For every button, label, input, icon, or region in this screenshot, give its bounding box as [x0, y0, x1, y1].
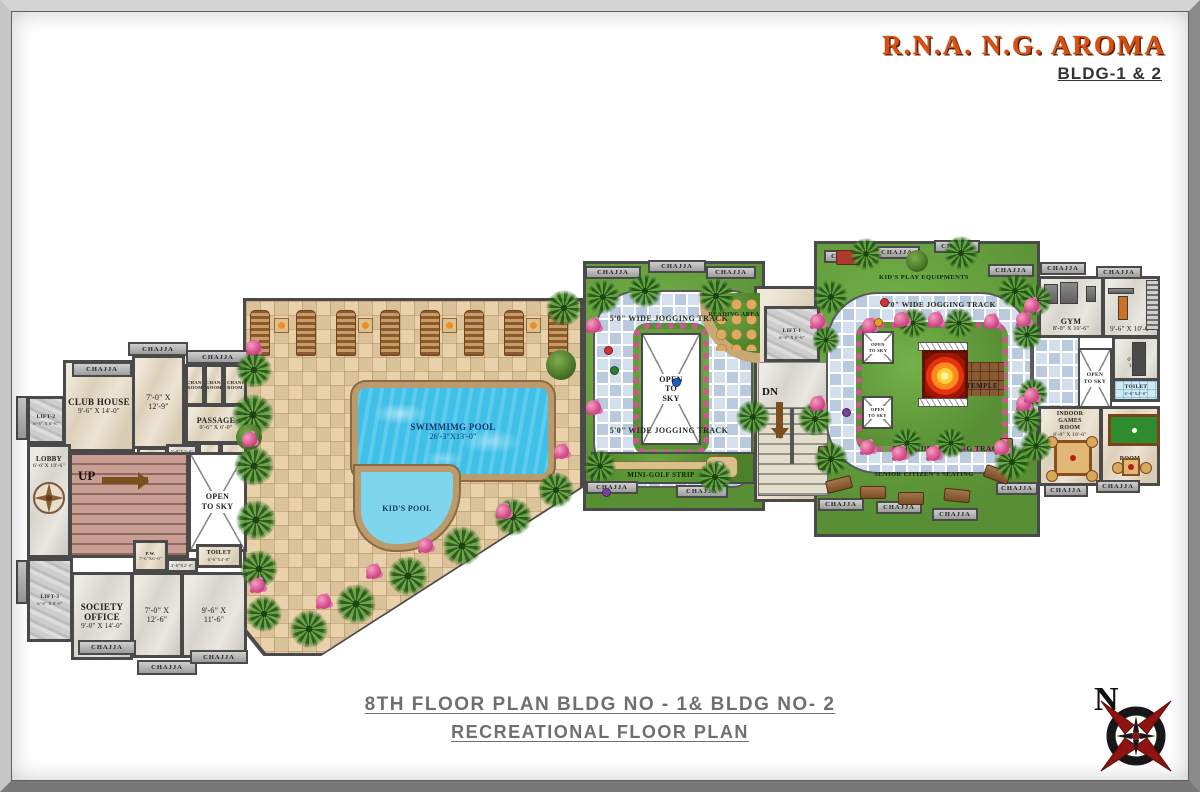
room-9-6x11-6: 9'-6" X 11'-6": [181, 572, 247, 658]
stair-rail: [790, 408, 794, 464]
palm-tree-icon: [388, 556, 428, 596]
lobby-compass-icon: [32, 481, 66, 515]
chajja-label: CHAJJA: [996, 482, 1038, 495]
jogging-track-label-right-top: 5'0" WIDE JOGGING TRACK: [880, 300, 1000, 309]
room-dim: 9'-6" X 14'-0": [78, 407, 120, 415]
palm-tree-icon: [236, 352, 272, 388]
chajja-label: CHAJJA: [78, 640, 136, 655]
room-pw: P.W. 7'-6"X6'-0": [133, 540, 168, 572]
room-lift-1: LIFT-1 6'-6" X 6'-6": [764, 306, 820, 362]
chajja-label: CHAJJA: [1040, 262, 1086, 275]
open-to-sky-right-2: OPEN TO SKY: [862, 396, 893, 429]
person-icon: [672, 378, 681, 387]
flower-icon: [316, 594, 331, 609]
flower-icon: [1024, 298, 1039, 313]
flower-icon: [984, 314, 999, 329]
sun-lounger-icon: [380, 310, 400, 356]
flower-icon: [860, 440, 875, 455]
side-table-icon: [274, 318, 289, 333]
gym-bench-icon: [1086, 286, 1096, 302]
flower-icon: [586, 318, 601, 333]
open-to-sky-label: OPEN TO SKY: [655, 374, 687, 405]
palm-tree-icon: [336, 584, 376, 624]
palm-tree-icon: [814, 442, 848, 476]
open-to-sky-label: OPEN TO SKY: [867, 341, 889, 354]
bench-icon: [943, 488, 970, 504]
chajja-label: CHAJJA: [585, 266, 641, 279]
north-compass-icon: N: [1082, 676, 1178, 776]
room-label: SOCIETY OFFICE: [74, 602, 130, 623]
palm-tree-icon: [290, 610, 328, 648]
open-to-sky-right-1: OPEN TO SKY: [862, 331, 894, 364]
chajja-label: CHAJJA: [72, 362, 132, 377]
room-label: GYM: [1061, 317, 1081, 326]
room-7x12-6: 7'-0" X 12'-6": [131, 572, 183, 658]
flower-icon: [366, 564, 381, 579]
room-lift-3: LIFT-3 6'-6" X 8'-0": [27, 558, 73, 642]
bench-icon: [860, 486, 886, 499]
person-icon: [610, 366, 619, 375]
palm-tree-icon: [234, 446, 274, 486]
flower-icon: [994, 440, 1009, 455]
kids-pool-label: KID'S POOL: [382, 504, 431, 513]
person-icon: [604, 346, 613, 355]
open-to-sky-far-right: OPEN TO SKY: [1078, 348, 1112, 410]
wall-ladder-icon: [1146, 280, 1159, 330]
sun-lounger-icon: [336, 310, 356, 356]
plan-canvas: R.N.A. N.G. AROMA BLDG-1 & 2 SWIMMIMG PO…: [0, 0, 1200, 792]
bush-icon: [906, 250, 928, 272]
room-changing-2: CHANGING ROOM: [204, 364, 224, 406]
palm-tree-icon: [1020, 430, 1052, 462]
room-dim: 8'-0" X 10'-6": [1053, 326, 1089, 333]
person-icon: [602, 488, 611, 497]
palm-tree-icon: [236, 500, 276, 540]
palm-tree-icon: [850, 238, 882, 270]
flower-icon: [1024, 388, 1039, 403]
room-label: CHANGING ROOM: [206, 380, 222, 390]
dn-label: DN: [762, 386, 778, 398]
palm-tree-icon: [698, 278, 734, 314]
room-toilet-left: TOILET 6'-6"X4'-0": [196, 544, 242, 568]
room-label: TOILET: [207, 550, 232, 557]
flower-icon: [250, 578, 265, 593]
temple-rail-bottom: [918, 398, 968, 407]
room-label: PASSAGE: [197, 416, 235, 425]
gym-machine-icon: [1060, 282, 1078, 304]
room-label: CLUB HOUSE: [68, 397, 130, 407]
pool-dim: 26'-3"X13'-0": [429, 432, 476, 441]
dn-arrow-icon: [776, 402, 783, 438]
pool-table-icon: [1108, 414, 1160, 446]
side-table-icon: [358, 318, 373, 333]
room-dim: 6'-6" X 6'-6": [779, 335, 804, 340]
side-table-icon: [1122, 458, 1140, 476]
gym-machine-icon: [1118, 296, 1128, 320]
palm-tree-icon: [586, 280, 620, 314]
jogging-track-label-bottom: 5'0" WIDE JOGGING TRACK: [598, 426, 740, 436]
palm-tree-icon: [814, 280, 848, 314]
flower-icon: [810, 314, 825, 329]
dumbbell-icon: [1108, 288, 1134, 294]
flower-icon: [242, 432, 257, 447]
chajja-label: CHAJJA: [706, 266, 756, 279]
flower-icon: [926, 446, 941, 461]
flower-icon: [810, 396, 825, 411]
sheet-title-line2: RECREATIONAL FLOOR PLAN: [451, 722, 749, 743]
flower-icon: [246, 340, 261, 355]
project-title: R.N.A. N.G. AROMA: [882, 30, 1166, 61]
chajja-label: CHAJJA: [1096, 480, 1140, 493]
flower-icon: [496, 504, 511, 519]
chajja-label: CHAJJA: [648, 260, 706, 273]
temple-label: TEMPLE: [958, 382, 1006, 390]
sun-lounger-icon: [420, 310, 440, 356]
pool-label: SWIMMIMG POOL: [410, 422, 495, 432]
room-dim: 6'-6"X 19'-6": [33, 463, 65, 469]
chajja-label: CHAJJA: [818, 498, 864, 511]
room-dim: 6'-6" X 6'-6": [33, 421, 58, 426]
palm-tree-icon: [546, 290, 582, 326]
palm-tree-icon: [246, 596, 282, 632]
room-dim: 8'-0" X 10'-6": [1053, 432, 1086, 438]
sun-lounger-icon: [296, 310, 316, 356]
person-icon: [880, 298, 889, 307]
floor-plan-sheet: R.N.A. N.G. AROMA BLDG-1 & 2 SWIMMIMG PO…: [0, 0, 1200, 792]
palm-tree-icon: [944, 236, 978, 270]
room-dim: 6'-6"X4'-0": [208, 557, 231, 562]
room-label: LOBBY: [36, 455, 62, 463]
up-label: UP: [78, 468, 95, 484]
palm-tree-icon: [736, 400, 770, 434]
room-label: CHANGING ROOM: [187, 380, 203, 390]
palm-tree-icon: [944, 308, 974, 338]
up-arrow-icon: [102, 477, 148, 484]
palm-tree-icon: [812, 326, 840, 354]
header: R.N.A. N.G. AROMA BLDG-1 & 2: [882, 30, 1166, 84]
person-icon: [842, 408, 851, 417]
room-dim: 9'-6" X 6'-0": [200, 425, 233, 432]
room-lift-2: LIFT-2 6'-6" X 6'-6": [27, 396, 65, 444]
chajja-label: CHAJJA: [137, 660, 197, 675]
senior-seating-label: SENIOR CITIZEN'S SEATING: [864, 471, 984, 478]
palm-tree-icon: [538, 472, 574, 508]
room-dim: 7'-6"X6'-0": [139, 556, 162, 561]
bench-icon: [898, 492, 924, 505]
flower-icon: [894, 312, 909, 327]
chajja-label: CHAJJA: [190, 650, 248, 664]
room-dim: 7'-0" X 12'-6": [139, 606, 175, 624]
bush-icon: [546, 350, 576, 380]
building-subtitle: BLDG-1 & 2: [882, 64, 1166, 84]
flower-icon: [418, 538, 433, 553]
kids-play-label: KID'S PLAY EQUIPMENTS: [866, 274, 982, 281]
room-dim: 7'-0" X 12'-9": [141, 393, 177, 411]
palm-tree-icon: [698, 460, 732, 494]
room-pass2: 4'-6"X2'-0": [166, 558, 198, 573]
room-changing-1: CHANGING ROOM: [185, 364, 205, 406]
room-toilet-right: TOILET 6'-6"X4'-0": [1112, 378, 1160, 402]
chair-icon: [1086, 436, 1098, 448]
flower-icon: [928, 312, 943, 327]
chair-icon: [1140, 462, 1152, 474]
temple-paving: [962, 362, 1004, 396]
temple-mandala: [922, 350, 968, 402]
room-dim: 9'-0" X 14'-0": [81, 622, 123, 630]
chair-icon: [1046, 470, 1058, 482]
palm-tree-icon: [584, 450, 616, 482]
open-to-sky-label: OPEN TO SKY: [201, 491, 235, 512]
room-dim: 4'-6"X2'-0": [171, 563, 194, 568]
chajja-label: CHAJJA: [1044, 484, 1088, 497]
room-lobby: LOBBY 6'-6"X 19'-6": [27, 444, 71, 558]
flower-icon: [586, 400, 601, 415]
flower-icon: [554, 444, 569, 459]
sun-lounger-icon: [504, 310, 524, 356]
person-icon: [874, 318, 883, 327]
chajja-label: CHAJJA: [586, 481, 638, 494]
sheet-title-line1: 8TH FLOOR PLAN BLDG NO - 1& BLDG NO- 2: [365, 694, 836, 716]
mini-golf-path: [602, 461, 708, 470]
room-dim: 6'-6"X4'-0": [1125, 391, 1148, 396]
room-7x12-9: 7'-0" X 12'-9": [132, 355, 185, 449]
flower-icon: [892, 446, 907, 461]
chair-icon: [1086, 470, 1098, 482]
chajja-label: CHAJJA: [1096, 266, 1142, 279]
side-table-icon: [442, 318, 457, 333]
room-dim: 9'-6" X 11'-6": [194, 606, 234, 624]
chajja-label: CHAJJA: [932, 508, 978, 521]
flower-icon: [1016, 312, 1031, 327]
side-table-icon: [526, 318, 541, 333]
sun-lounger-icon: [464, 310, 484, 356]
open-to-sky-label: OPEN TO SKY: [1081, 371, 1109, 386]
open-to-sky-label: OPEN TO SKY: [867, 406, 889, 419]
room-label: INDOOR GAMES ROOM: [1048, 411, 1092, 432]
palm-tree-icon: [442, 526, 482, 566]
chajja-label: CHAJJA: [128, 342, 188, 356]
room-dim: 6'-6" X 8'-0": [37, 601, 62, 606]
treadmill-icon: [1132, 342, 1146, 376]
palm-tree-icon: [628, 274, 662, 308]
